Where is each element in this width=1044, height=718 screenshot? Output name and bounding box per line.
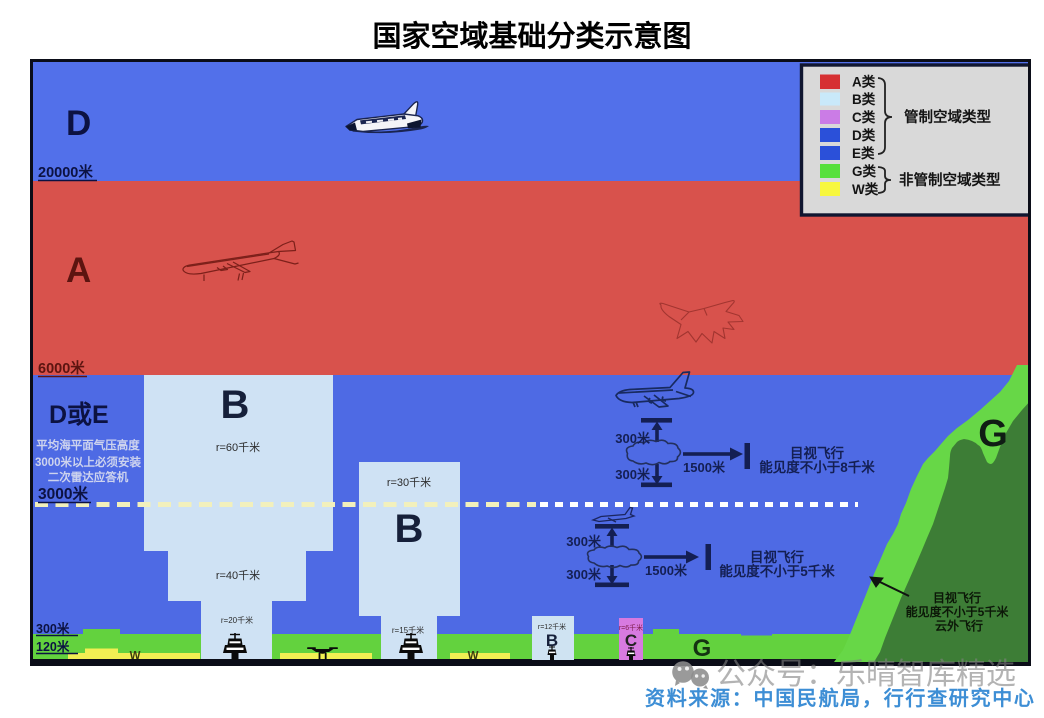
svg-text:能见度不小于8千米: 能见度不小于8千米 <box>759 459 875 475</box>
svg-text:300米: 300米 <box>615 467 651 482</box>
svg-text:300米: 300米 <box>36 621 70 636</box>
svg-text:W类: W类 <box>852 181 879 197</box>
svg-text:r=15千米: r=15千米 <box>392 625 424 635</box>
svg-text:r=12千米: r=12千米 <box>538 622 566 631</box>
svg-text:300米: 300米 <box>566 534 602 549</box>
svg-text:目视飞行: 目视飞行 <box>750 549 804 565</box>
svg-text:二次雷达应答机: 二次雷达应答机 <box>48 470 129 484</box>
svg-text:D: D <box>66 104 91 143</box>
svg-text:r=20千米: r=20千米 <box>221 615 253 625</box>
svg-text:C类: C类 <box>852 109 876 125</box>
svg-text:G: G <box>978 413 1008 455</box>
svg-text:300米: 300米 <box>566 567 602 582</box>
svg-text:非管制空域类型: 非管制空域类型 <box>899 171 1001 189</box>
svg-text:D或E: D或E <box>49 401 109 429</box>
svg-text:B: B <box>221 383 250 427</box>
svg-text:管制空域类型: 管制空域类型 <box>904 108 991 126</box>
svg-text:目视飞行: 目视飞行 <box>933 590 981 605</box>
svg-text:r=30千米: r=30千米 <box>387 476 431 489</box>
svg-text:r=60千米: r=60千米 <box>216 441 260 454</box>
svg-text:B类: B类 <box>852 91 876 107</box>
svg-text:A类: A类 <box>852 74 876 90</box>
svg-text:平均海平面气压高度: 平均海平面气压高度 <box>36 438 140 452</box>
svg-text:能见度不小于5千米: 能见度不小于5千米 <box>906 604 1010 619</box>
svg-text:r=40千米: r=40千米 <box>216 569 260 582</box>
svg-text:1500米: 1500米 <box>645 563 688 578</box>
svg-text:300米: 300米 <box>615 431 651 446</box>
svg-text:能见度不小于5千米: 能见度不小于5千米 <box>719 563 835 579</box>
svg-text:20000米: 20000米 <box>38 163 93 181</box>
svg-text:B: B <box>395 507 424 551</box>
svg-text:D类: D类 <box>852 127 876 143</box>
svg-text:G类: G类 <box>852 163 877 179</box>
svg-text:1500米: 1500米 <box>683 460 726 475</box>
svg-text:A: A <box>66 251 91 290</box>
svg-text:120米: 120米 <box>36 639 70 654</box>
svg-text:云外飞行: 云外飞行 <box>935 618 983 633</box>
svg-text:目视飞行: 目视飞行 <box>790 445 844 461</box>
svg-text:6000米: 6000米 <box>38 359 85 377</box>
svg-text:3000米: 3000米 <box>38 484 88 503</box>
svg-text:3000米以上必须安装: 3000米以上必须安装 <box>35 455 142 469</box>
svg-text:E类: E类 <box>852 145 875 161</box>
